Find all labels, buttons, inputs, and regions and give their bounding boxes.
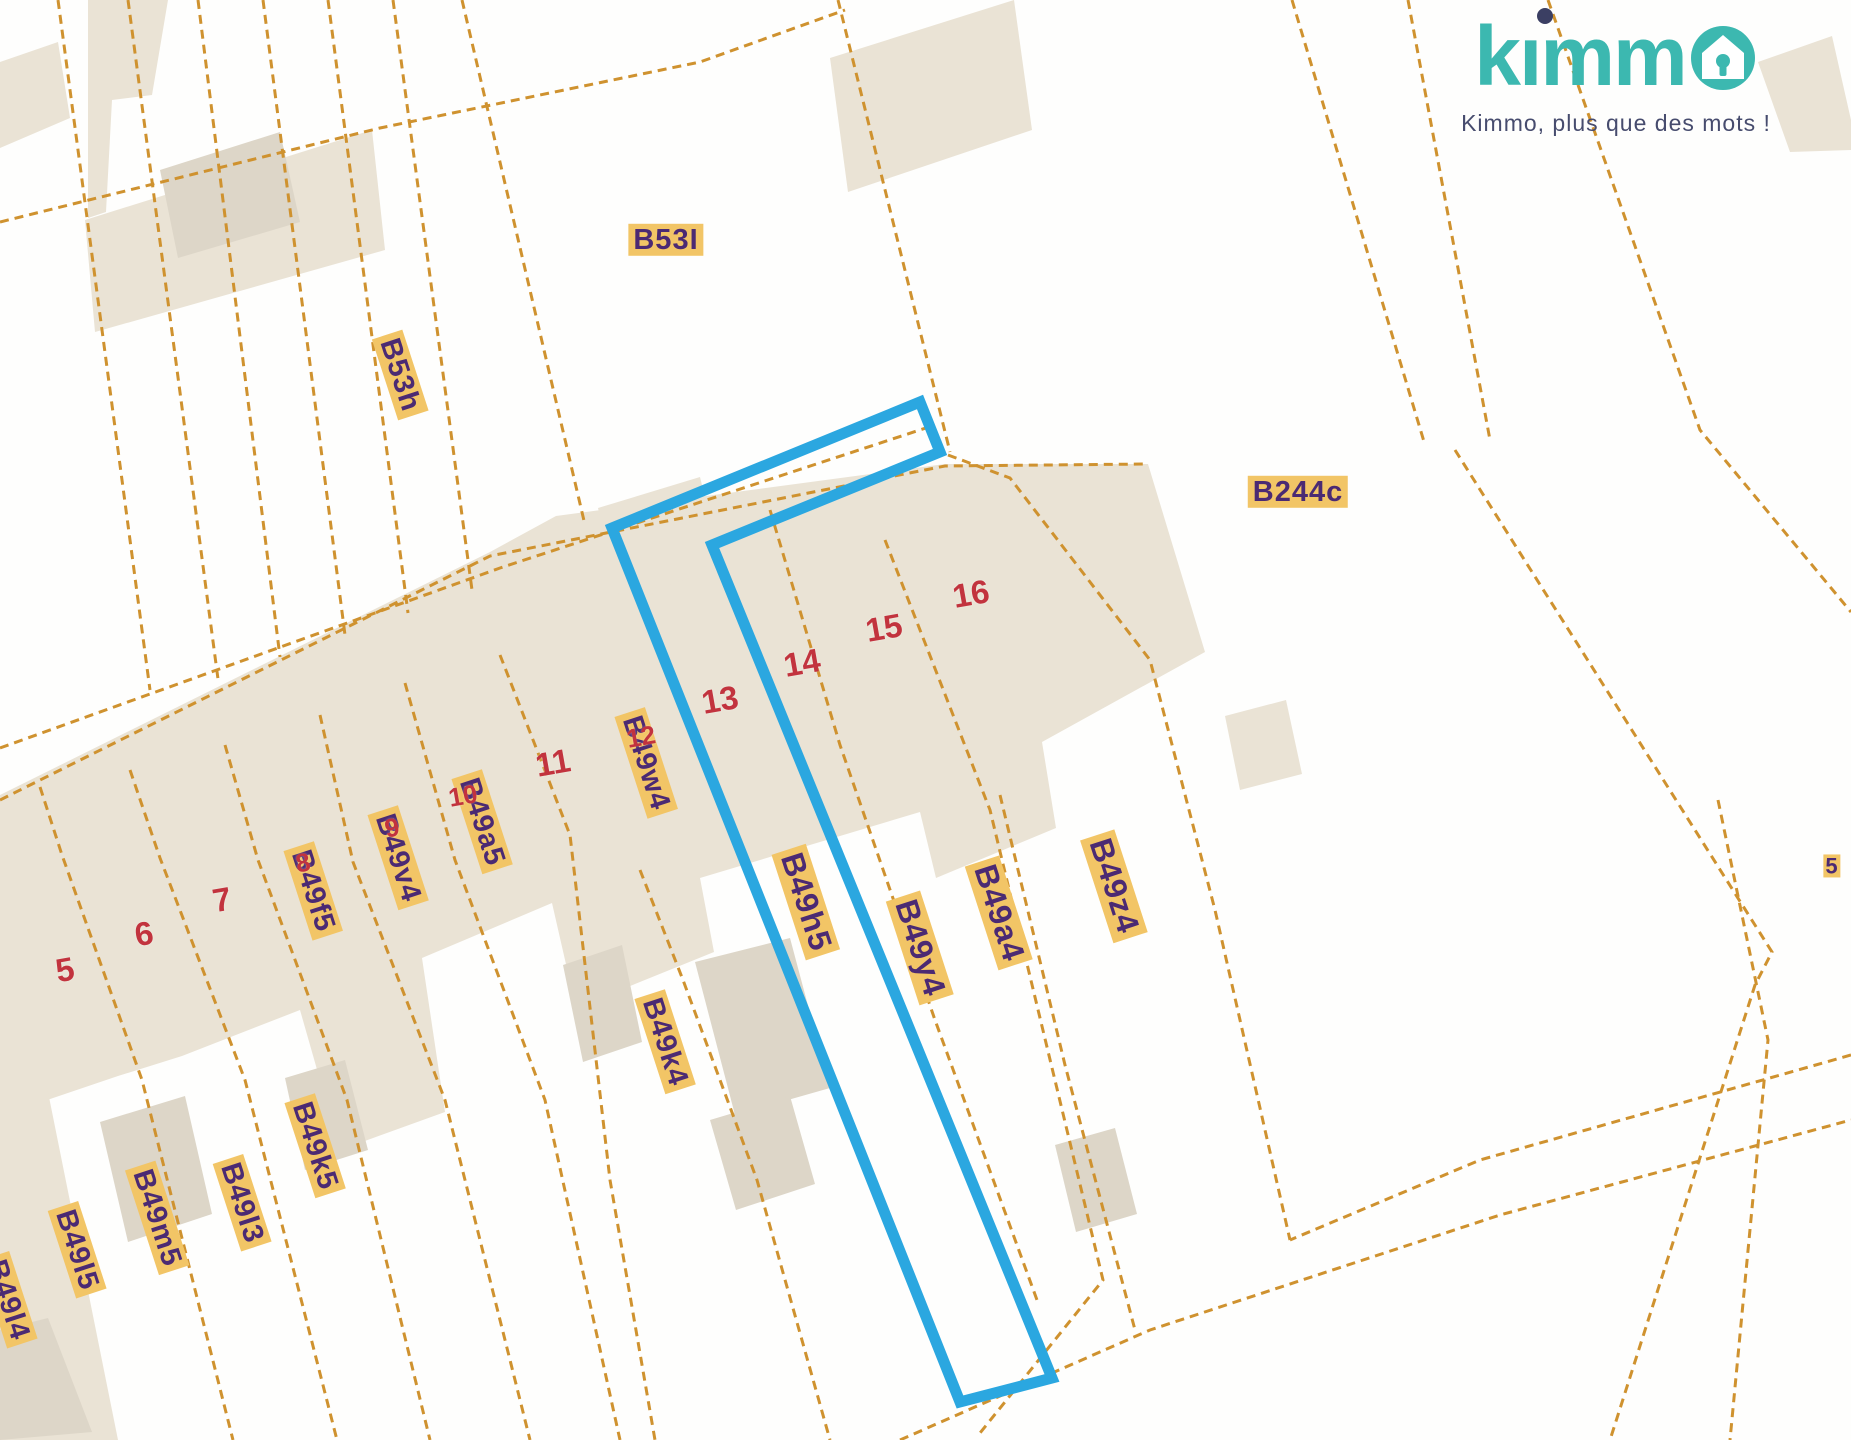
lot-number-16: 16 [950,572,993,616]
lot-number-15: 15 [863,606,906,650]
cadastral-map-view[interactable]: B53I B53h B244c B49w4 B49a5 B49v4 B49f5 … [0,0,1851,1440]
parcel-label-b53i: B53I [628,224,703,256]
lot-number-10: 10 [446,778,480,814]
parcel-label-edge-5: 5 [1823,854,1840,877]
parcel-label-b244c: B244c [1248,476,1348,508]
lot-number-11: 11 [533,741,574,784]
kimmo-logo-text: kımm [1474,14,1757,104]
logo-house-o-icon [1688,20,1758,104]
kimmo-tagline: Kimmo, plus que des mots ! [1436,110,1796,137]
kimmo-logo: kımm Kimmo, plus que des mots ! [1436,14,1796,137]
map-canvas[interactable] [0,0,1851,1440]
lot-number-14: 14 [781,641,824,685]
lot-number-13: 13 [699,678,742,722]
lot-number-12: 12 [624,719,658,755]
